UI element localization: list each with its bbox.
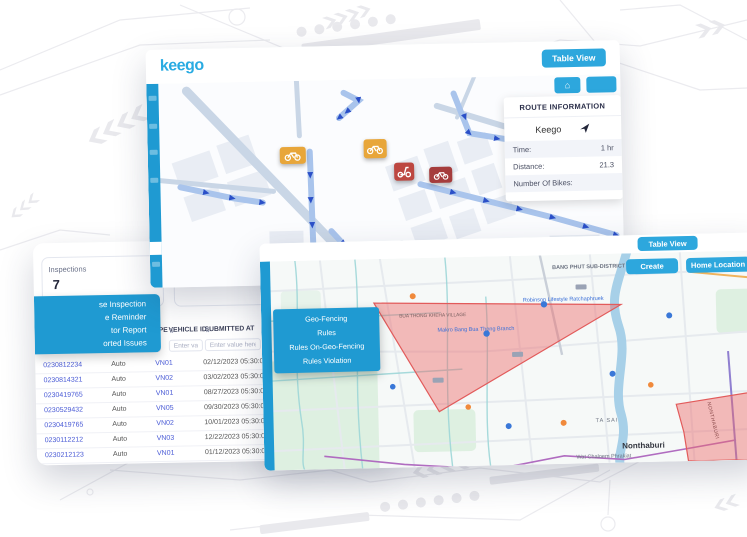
keego-logo: keego [160,57,204,76]
geofencing-submenu: Geo-Fencing Rules Rules On-Geo-Fencing R… [273,307,380,373]
geofence-window: Table View [259,232,747,470]
page: Inspections 7 7 se Inspection e Reminder… [0,0,747,537]
stat-label: Inspections [48,263,152,274]
table-view-button[interactable]: Table View [542,48,606,67]
sidebar-active-item[interactable] [150,242,162,255]
stat-value: 7 [53,275,153,292]
route-information-panel: ROUTE INFORMATION Keego Time:1 hr Distan… [504,95,623,201]
sort-icon[interactable]: ⇅ [205,326,211,334]
home-icon: ⌂ [565,80,571,90]
panel-title: ROUTE INFORMATION [504,95,621,118]
inspections-dropdown-menu: se Inspection e Reminder tor Report orte… [34,294,161,354]
map-label-city: Nonthaburi [622,441,665,451]
geofence-map-canvas[interactable]: BANG PHUT SUB-DISTRICT Robinson Lifestyl… [260,250,747,470]
bike-marker-yellow-bubble[interactable] [280,147,306,165]
create-button[interactable]: Create [626,258,678,274]
menu-item-rules-on-geo-fencing[interactable]: Rules On-Geo-Fencing [274,339,380,355]
route-bikes-row: Number Of Bikes: [505,173,622,192]
bike-icon [432,170,450,180]
sort-icon[interactable]: ⇅ [169,327,175,335]
table-view-button[interactable]: Table View [637,236,697,251]
home-location-button[interactable]: Home Location [686,257,747,273]
bike-marker-yellow[interactable] [363,139,386,158]
map-label-area: TA SAI [596,418,619,425]
bike-icon [283,150,303,161]
river [613,250,632,465]
map-control-button[interactable] [586,76,616,93]
filter-vehicle-id[interactable] [169,339,203,352]
home-button[interactable]: ⌂ [554,77,580,94]
bike-icon [366,143,385,154]
menu-item-rules-violation[interactable]: Rules Violation [274,353,380,369]
menu-item-reported-issues[interactable]: orted Issues [35,336,161,351]
provider-name: Keego [535,124,561,135]
scooter-marker-red[interactable] [394,162,414,180]
scooter-icon [397,165,411,177]
navigation-icon[interactable] [579,123,590,134]
filter-submitted-at[interactable] [205,338,261,351]
map-label-poi: Wat Chaloem Phrakiat [576,453,631,460]
bike-marker-darkred[interactable] [429,167,452,183]
